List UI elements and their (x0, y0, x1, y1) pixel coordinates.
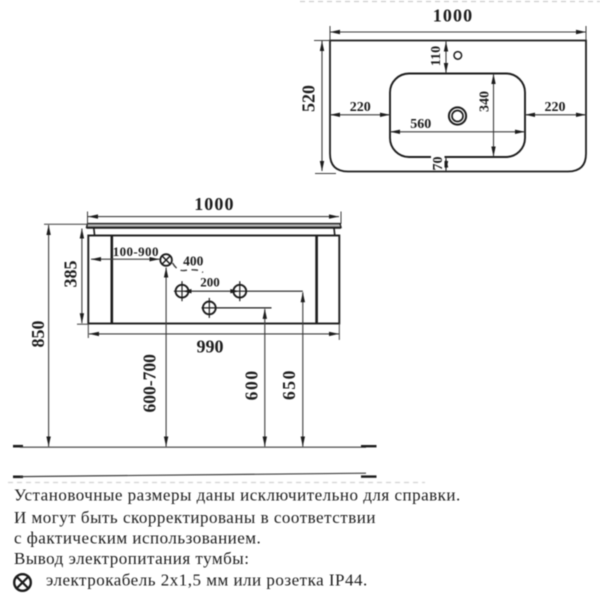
svg-text:220: 220 (350, 100, 371, 115)
svg-text:с фактическим использованием.: с фактическим использованием. (14, 529, 261, 548)
svg-text:электрокабель 2х1,5 мм или роз: электрокабель 2х1,5 мм или розетка IP44. (46, 571, 368, 590)
svg-text:110: 110 (429, 46, 444, 66)
svg-text:650: 650 (279, 369, 299, 400)
svg-text:560: 560 (410, 117, 431, 132)
svg-text:600-700: 600-700 (140, 354, 160, 413)
svg-text:220: 220 (545, 100, 566, 115)
svg-text:Установочные размеры даны искл: Установочные размеры даны исключительно … (14, 486, 461, 505)
svg-text:200: 200 (200, 275, 220, 290)
svg-text:400: 400 (183, 254, 204, 269)
svg-text:100-900: 100-900 (113, 244, 159, 259)
svg-text:1000: 1000 (194, 194, 234, 214)
svg-text:520: 520 (298, 85, 318, 112)
svg-text:385: 385 (61, 261, 81, 288)
svg-text:340: 340 (478, 91, 493, 112)
svg-text:850: 850 (28, 321, 48, 348)
svg-text:Вывод электропитания тумбы:: Вывод электропитания тумбы: (14, 549, 249, 568)
svg-text:И могут быть скорректированы в: И могут быть скорректированы в соответст… (14, 508, 376, 527)
svg-text:70: 70 (431, 157, 446, 171)
svg-text:600: 600 (241, 369, 261, 400)
svg-text:1000: 1000 (433, 6, 473, 26)
svg-text:990: 990 (197, 337, 224, 357)
